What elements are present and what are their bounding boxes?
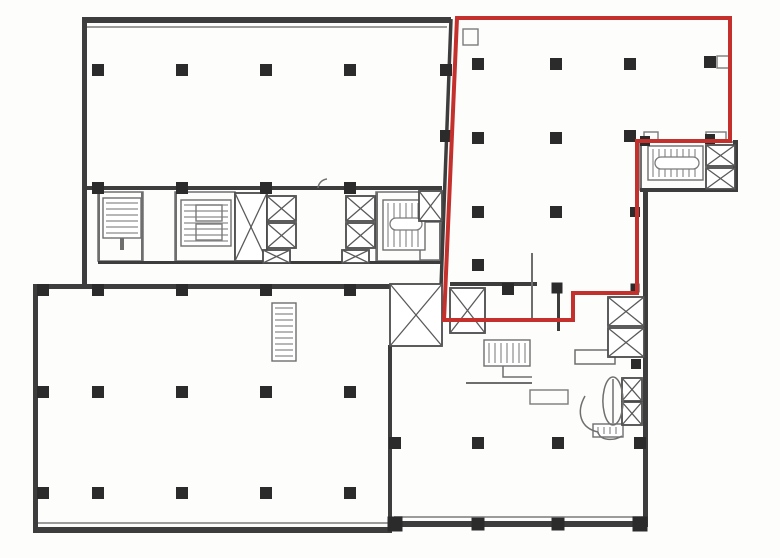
elevator-shaft-icon <box>608 328 644 357</box>
wall-segment <box>643 190 648 527</box>
column <box>260 386 272 398</box>
wall-segment <box>390 521 648 527</box>
elevator-shaft-icon <box>390 284 442 346</box>
wall-curve <box>503 366 532 377</box>
stair-icon <box>593 424 623 437</box>
wall-segment <box>33 527 392 533</box>
column <box>260 284 272 296</box>
window-line <box>38 522 388 524</box>
column <box>704 56 716 68</box>
stair-icon <box>181 200 231 246</box>
column <box>176 182 188 194</box>
stair-landing <box>390 218 422 230</box>
elevator-shaft-icon <box>706 168 735 189</box>
column <box>388 517 403 532</box>
floor-plan-figure <box>0 0 780 558</box>
wall-segment <box>82 17 451 23</box>
wall-segment <box>388 345 392 527</box>
elevator-shaft-icon <box>267 223 296 248</box>
column <box>176 386 188 398</box>
column <box>37 487 49 499</box>
column <box>472 518 485 531</box>
column <box>260 64 272 76</box>
column <box>260 182 272 194</box>
elevator-shaft-icon <box>706 145 735 166</box>
column <box>92 386 104 398</box>
column <box>631 359 641 369</box>
partition-wall <box>98 192 100 261</box>
column <box>472 58 484 70</box>
column <box>472 259 484 271</box>
column <box>344 386 356 398</box>
column <box>92 284 104 296</box>
partition-wall <box>640 142 642 188</box>
floor-plan-page <box>0 0 780 558</box>
column <box>92 182 104 194</box>
column <box>344 487 356 499</box>
elevator-shaft-icon <box>342 250 369 263</box>
column <box>344 284 356 296</box>
window-line <box>87 26 447 28</box>
elevator-shaft-icon <box>263 250 290 263</box>
column <box>344 182 356 194</box>
column <box>37 386 49 398</box>
column <box>472 437 484 449</box>
column <box>472 206 484 218</box>
stair-icon <box>648 146 703 180</box>
elevator-shaft-icon <box>450 288 485 333</box>
column <box>552 518 565 531</box>
fixture-outline <box>530 390 568 404</box>
column <box>552 437 564 449</box>
partition-wall <box>531 253 533 320</box>
column <box>176 487 188 499</box>
window-line <box>394 516 644 518</box>
stair-landing <box>655 157 699 169</box>
stair-icon <box>272 303 296 361</box>
elevator-shaft-icon <box>419 191 442 221</box>
column <box>176 64 188 76</box>
column <box>344 64 356 76</box>
fixture-outline <box>463 29 478 45</box>
stair-icon <box>103 198 141 238</box>
elevator-shaft-icon <box>346 223 375 248</box>
floor-plan-svg <box>0 0 780 558</box>
column <box>624 130 636 142</box>
partition-wall <box>175 192 177 261</box>
elevator-shaft-icon <box>267 196 296 221</box>
wall-segment <box>33 284 391 289</box>
column <box>92 64 104 76</box>
column <box>472 132 484 144</box>
elevator-shaft-icon <box>622 378 642 401</box>
column <box>633 517 648 532</box>
column <box>389 437 401 449</box>
column <box>550 132 562 144</box>
column <box>176 284 188 296</box>
column <box>37 284 49 296</box>
column <box>502 283 514 295</box>
column <box>550 58 562 70</box>
elevator-shaft-icon <box>346 196 375 221</box>
partition-wall <box>466 382 532 384</box>
column <box>624 58 636 70</box>
stair-icon <box>484 340 530 366</box>
elevator-shaft-icon <box>608 297 644 326</box>
partition-wall <box>376 192 378 261</box>
column <box>550 206 562 218</box>
column <box>440 64 452 76</box>
stair-room <box>103 198 141 238</box>
wall-segment <box>450 282 537 286</box>
column <box>260 487 272 499</box>
fixture-outline <box>717 56 729 68</box>
wall-segment <box>82 17 87 288</box>
column <box>552 283 563 294</box>
column <box>634 437 646 449</box>
elevator-shaft-icon <box>622 402 642 425</box>
column <box>92 487 104 499</box>
